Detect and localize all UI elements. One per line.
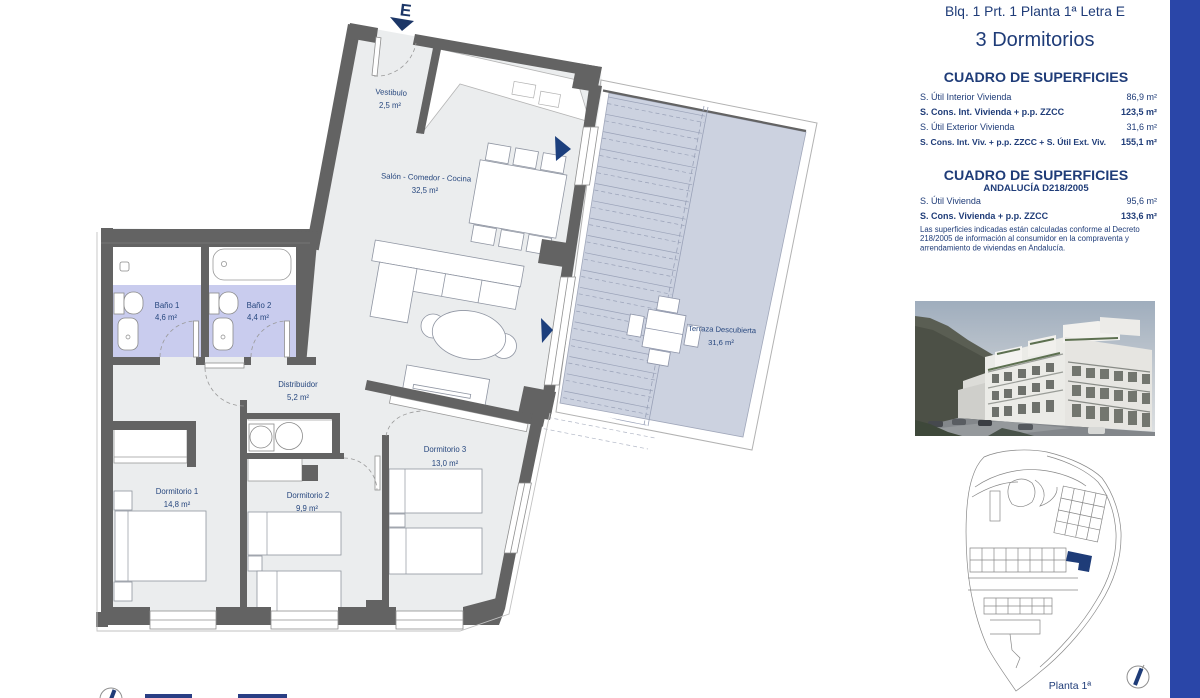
- svg-text:9,9 m²: 9,9 m²: [296, 504, 318, 513]
- svg-text:218/2005 de información al con: 218/2005 de información al consumidor en…: [920, 234, 1129, 243]
- svg-text:Dormitorio 2: Dormitorio 2: [287, 491, 329, 500]
- svg-text:S. Útil Exterior Vivienda: S. Útil Exterior Vivienda: [920, 122, 1014, 132]
- svg-text:32,5 m²: 32,5 m²: [412, 186, 439, 195]
- svg-text:Blq. 1 Prt. 1 Planta 1ª Letra: Blq. 1 Prt. 1 Planta 1ª Letra E: [945, 4, 1125, 19]
- svg-text:Dormitorio 1: Dormitorio 1: [156, 487, 198, 496]
- svg-text:31,6 m²: 31,6 m²: [708, 338, 734, 347]
- svg-text:CUADRO DE SUPERFICIES: CUADRO DE SUPERFICIES: [944, 168, 1128, 184]
- svg-text:S. Cons. Vivienda + p.p. ZZCC: S. Cons. Vivienda + p.p. ZZCC: [920, 211, 1049, 221]
- svg-text:14,8 m²: 14,8 m²: [164, 500, 191, 509]
- svg-text:Baño 2: Baño 2: [247, 301, 272, 310]
- svg-text:95,6 m²: 95,6 m²: [1126, 196, 1157, 206]
- svg-text:31,6 m²: 31,6 m²: [1126, 122, 1157, 132]
- svg-text:155,1 m²: 155,1 m²: [1121, 137, 1157, 147]
- svg-text:arrendamiento de viviendas en: arrendamiento de viviendas en Andalucía.: [920, 243, 1065, 252]
- svg-text:Las superficies indicadas está: Las superficies indicadas están calculad…: [920, 225, 1140, 234]
- svg-text:Distribuidor: Distribuidor: [278, 380, 318, 389]
- svg-text:CUADRO DE SUPERFICIES: CUADRO DE SUPERFICIES: [944, 70, 1128, 86]
- svg-text:4,6 m²: 4,6 m²: [155, 313, 177, 322]
- svg-text:Baño 1: Baño 1: [155, 301, 180, 310]
- svg-text:3 Dormitorios: 3 Dormitorios: [976, 29, 1095, 51]
- svg-text:Dormitorio 3: Dormitorio 3: [424, 445, 466, 454]
- svg-text:S. Útil Vivienda: S. Útil Vivienda: [920, 196, 981, 206]
- svg-text:Vestibulo: Vestibulo: [375, 87, 408, 98]
- svg-text:5,2 m²: 5,2 m²: [287, 393, 309, 402]
- svg-text:E: E: [399, 0, 413, 20]
- svg-text:S. Cons. Int. Vivienda + p.p.: S. Cons. Int. Vivienda + p.p. ZZCC: [920, 107, 1065, 117]
- svg-text:13,0 m²: 13,0 m²: [432, 459, 459, 468]
- svg-text:ANDALUCÍA D218/2005: ANDALUCÍA D218/2005: [983, 183, 1089, 194]
- svg-text:123,5 m²: 123,5 m²: [1121, 107, 1157, 117]
- svg-text:86,9 m²: 86,9 m²: [1126, 92, 1157, 102]
- svg-text:Planta 1ª: Planta 1ª: [1049, 680, 1092, 692]
- svg-text:S. Útil Interior Vivienda: S. Útil Interior Vivienda: [920, 92, 1011, 102]
- svg-text:133,6 m²: 133,6 m²: [1121, 211, 1157, 221]
- svg-text:2,5 m²: 2,5 m²: [379, 101, 401, 110]
- svg-text:4,4 m²: 4,4 m²: [247, 313, 269, 322]
- svg-text:S. Cons. Int. Viv. + p.p. ZZCC: S. Cons. Int. Viv. + p.p. ZZCC + S. Útil…: [920, 136, 1106, 147]
